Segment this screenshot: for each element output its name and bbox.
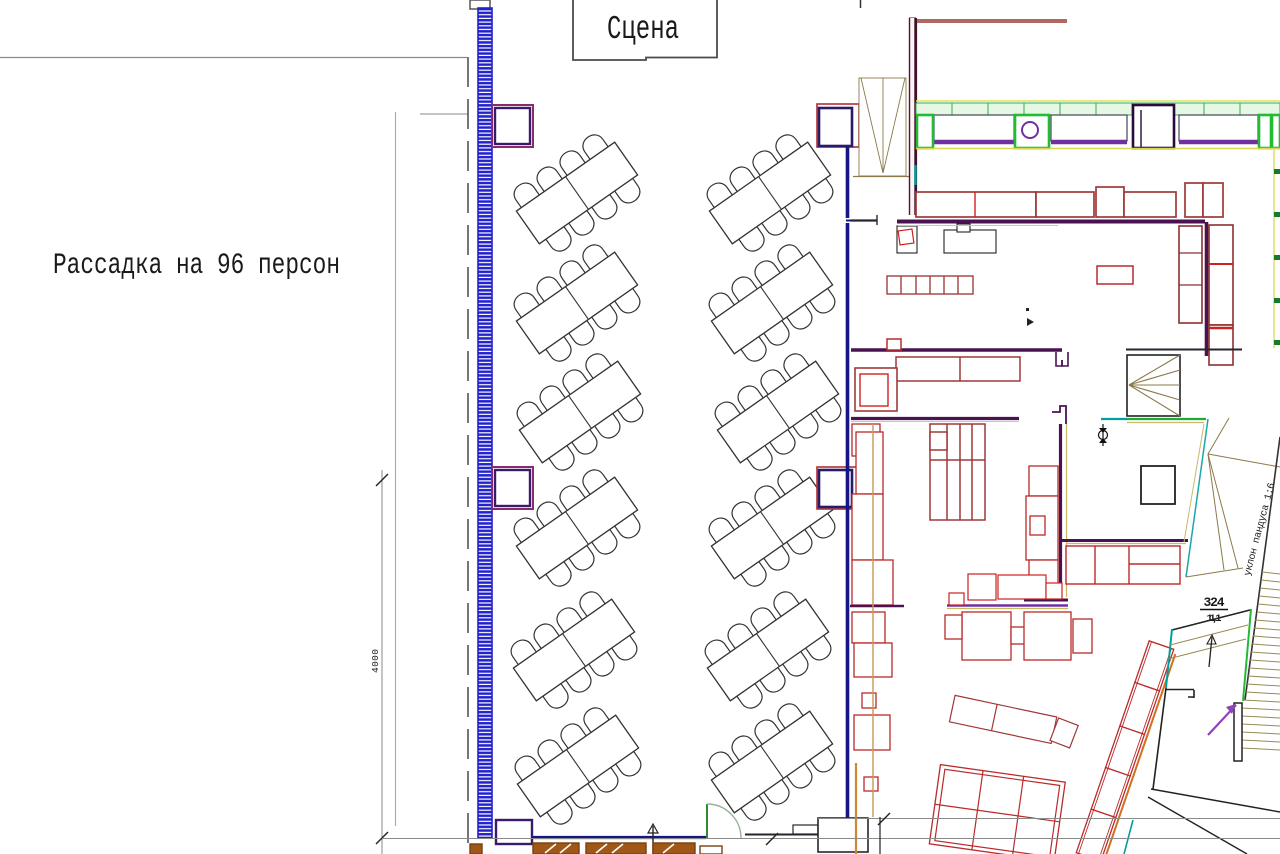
svg-text:Сцена: Сцена [607, 11, 679, 48]
svg-text:324: 324 [1204, 595, 1225, 610]
svg-text:4000: 4000 [370, 649, 381, 673]
svg-text:Рассадка на 96 персон: Рассадка на 96 персон [53, 249, 340, 283]
